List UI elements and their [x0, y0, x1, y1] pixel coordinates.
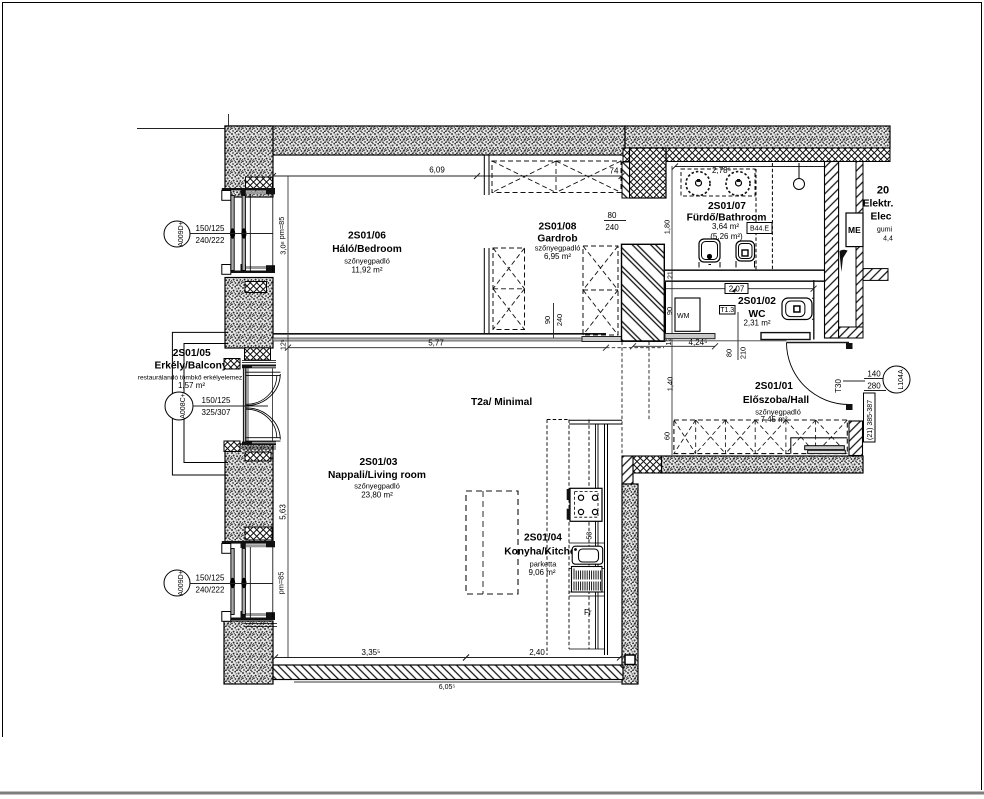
svg-text:21: 21	[668, 271, 675, 279]
svg-text:1,57 m²: 1,57 m²	[178, 381, 205, 390]
svg-text:B44.E: B44.E	[750, 226, 769, 233]
svg-text:240/222: 240/222	[196, 236, 225, 245]
svg-text:(21) 385-387: (21) 385-387	[867, 400, 874, 440]
svg-text:4,4: 4,4	[883, 236, 893, 243]
svg-text:240: 240	[605, 223, 619, 232]
svg-text:pm=85: pm=85	[277, 217, 286, 240]
svg-text:5,77: 5,77	[428, 339, 444, 348]
svg-text:23,80 m²: 23,80 m²	[361, 491, 393, 500]
svg-text:szőnyegpadló: szőnyegpadló	[344, 256, 390, 265]
svg-text:280: 280	[867, 382, 881, 391]
svg-text:90: 90	[665, 307, 674, 315]
svg-text:3,0⁸: 3,0⁸	[279, 241, 288, 254]
svg-text:5,63: 5,63	[279, 504, 288, 520]
svg-text:140: 140	[867, 370, 881, 379]
svg-text:Előszoba/Hall: Előszoba/Hall	[743, 395, 809, 406]
svg-text:Fr: Fr	[584, 608, 592, 617]
svg-text:240/222: 240/222	[196, 586, 225, 595]
svg-text:pm=85: pm=85	[277, 572, 286, 595]
svg-text:Erkély/Balcony: Erkély/Balcony	[154, 361, 227, 372]
svg-text:2,40: 2,40	[529, 648, 545, 657]
svg-text:szőnyegpadló: szőnyegpadló	[354, 482, 400, 491]
svg-text:A009D+: A009D+	[178, 570, 185, 596]
svg-text:53: 53	[587, 532, 594, 540]
svg-text:3,64 m²: 3,64 m²	[712, 222, 739, 231]
svg-text:gumi: gumi	[877, 227, 893, 234]
svg-text:2S01/01: 2S01/01	[755, 381, 793, 392]
svg-text:80: 80	[725, 349, 734, 357]
svg-text:6,09: 6,09	[429, 166, 445, 175]
svg-text:90: 90	[543, 316, 552, 324]
svg-text:T2a/ Minimal: T2a/ Minimal	[471, 397, 532, 408]
svg-text:6,05⁵: 6,05⁵	[439, 684, 456, 691]
svg-text:T30: T30	[834, 379, 843, 393]
svg-text:12⁵: 12⁵	[281, 339, 288, 350]
svg-text:Elec: Elec	[871, 212, 892, 223]
svg-text:150/125: 150/125	[196, 224, 225, 233]
svg-text:60: 60	[663, 432, 672, 440]
svg-text:T1.3: T1.3	[720, 307, 734, 314]
svg-text:11,92 m²: 11,92 m²	[352, 266, 383, 275]
svg-text:2S01/08: 2S01/08	[539, 222, 577, 233]
svg-text:6,95 m²: 6,95 m²	[544, 252, 571, 261]
svg-text:A008C+: A008C+	[180, 393, 187, 419]
svg-text:2S01/06: 2S01/06	[348, 231, 386, 242]
svg-text:150/125: 150/125	[196, 574, 225, 583]
svg-text:L104A: L104A	[898, 369, 905, 390]
svg-text:WM: WM	[677, 313, 690, 320]
svg-text:150/125: 150/125	[202, 396, 231, 405]
svg-text:2S01/04: 2S01/04	[524, 533, 562, 544]
svg-text:Elektr.: Elektr.	[863, 199, 894, 210]
svg-text:A009D+: A009D+	[178, 221, 185, 247]
svg-text:1,80: 1,80	[663, 220, 672, 234]
svg-text:Háló/Bedroom: Háló/Bedroom	[332, 244, 402, 255]
svg-text:2,31 m²: 2,31 m²	[743, 319, 770, 328]
svg-text:20: 20	[877, 185, 889, 197]
svg-text:ME: ME	[848, 225, 861, 235]
svg-text:2S01/05: 2S01/05	[173, 348, 211, 359]
svg-text:74: 74	[610, 167, 619, 176]
svg-text:3,35⁵: 3,35⁵	[362, 648, 381, 657]
svg-text:2S01/07: 2S01/07	[708, 201, 746, 212]
svg-text:2,78⁵: 2,78⁵	[712, 166, 731, 175]
svg-text:4,24⁵: 4,24⁵	[689, 338, 708, 347]
svg-text:210: 210	[739, 347, 748, 359]
svg-text:80: 80	[608, 211, 617, 220]
svg-text:Nappali/Living room: Nappali/Living room	[328, 470, 426, 481]
svg-text:325/307: 325/307	[202, 408, 231, 417]
svg-text:2,07: 2,07	[729, 285, 745, 294]
svg-text:Konyha/Kitchen: Konyha/Kitchen	[504, 547, 582, 558]
svg-text:1,40: 1,40	[666, 377, 675, 391]
svg-text:9,06 m²: 9,06 m²	[528, 568, 555, 577]
svg-text:2S01/03: 2S01/03	[360, 457, 398, 468]
svg-text:240: 240	[555, 314, 564, 326]
svg-text:2S01/02: 2S01/02	[738, 296, 776, 307]
